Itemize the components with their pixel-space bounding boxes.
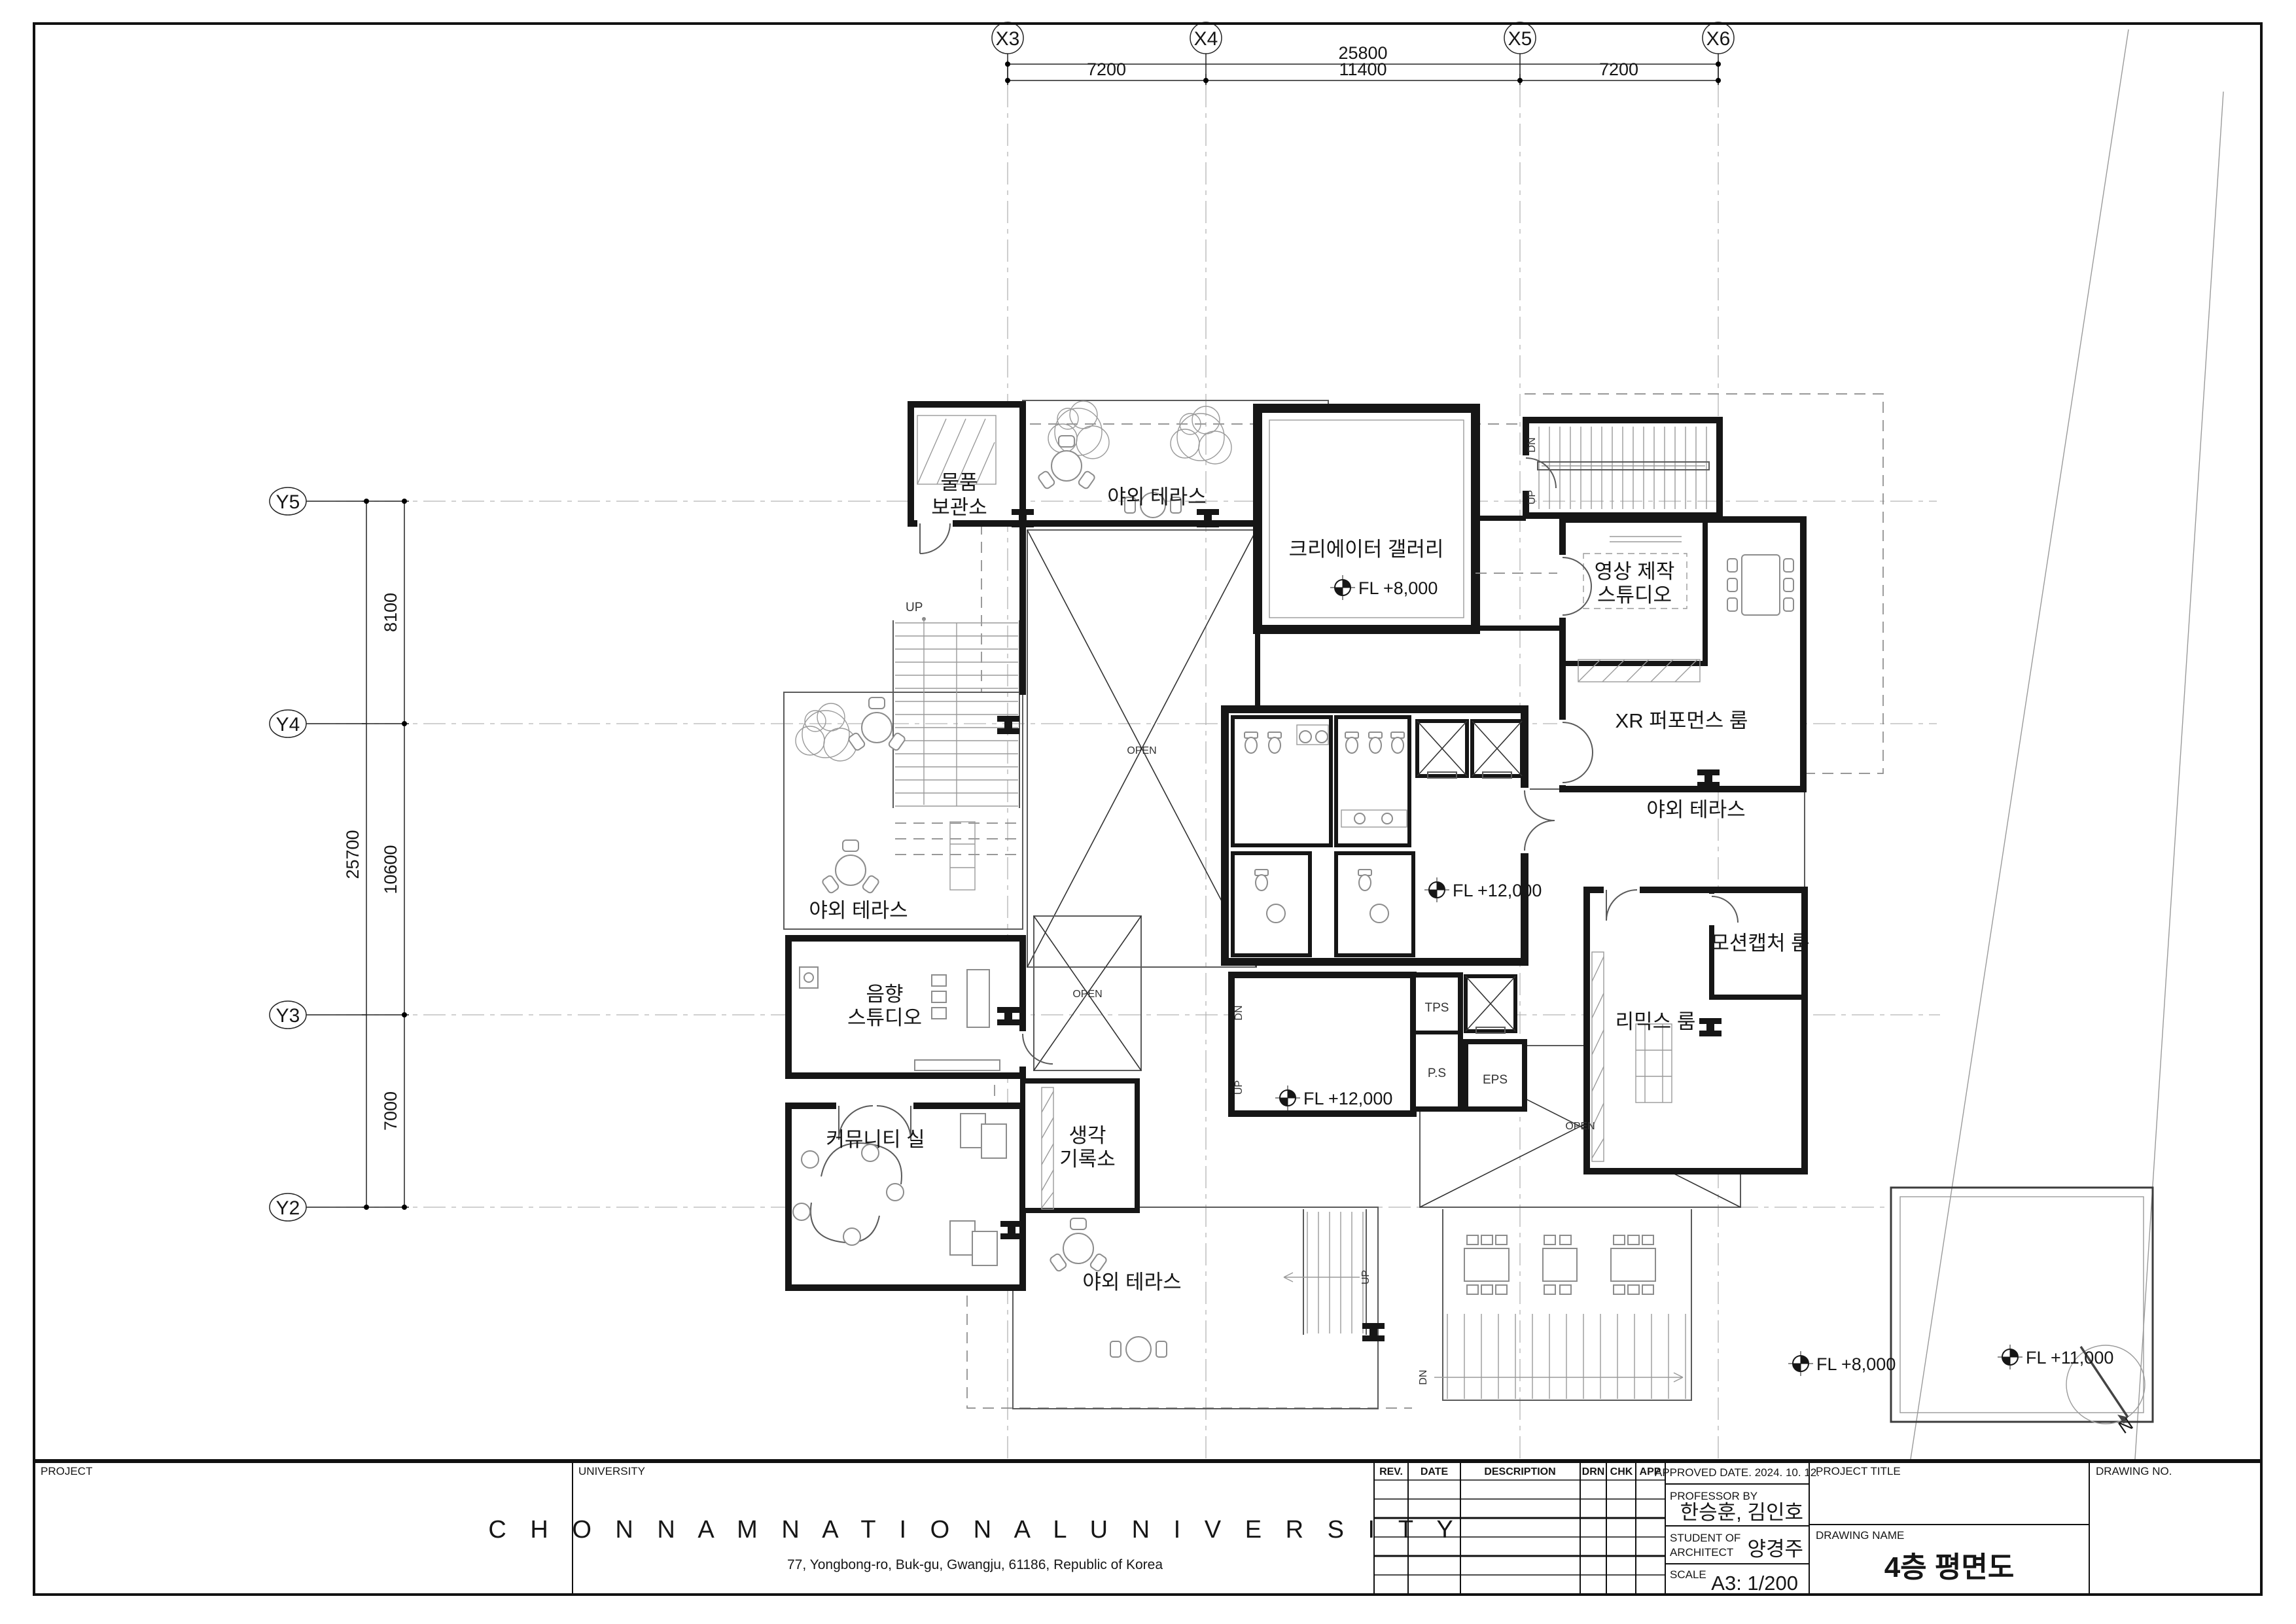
dim-y-seg-3: 7000 — [381, 1091, 400, 1131]
grid-bubble-x6: X6 — [1706, 28, 1731, 50]
dim-y-seg-2: 10600 — [381, 845, 400, 894]
room-label-terrace-left: 야외 테라스 — [809, 899, 908, 922]
up-label-tr-stair: UP — [1527, 490, 1538, 504]
room-label-video-2: 스튜디오 — [1597, 584, 1672, 607]
dn-label-deck: DN — [1418, 1369, 1429, 1385]
project-label: PROJECT — [41, 1465, 92, 1477]
room-label-remix: 리믹스 룸 — [1616, 1010, 1696, 1033]
professor-names: 한승훈, 김인호 — [1680, 1501, 1803, 1524]
room-label-storage-1: 물품 — [940, 471, 978, 494]
drawing-sheet: 25800 7200 11400 7200 25700 8100 10600 7… — [0, 0, 2296, 1624]
tps-label: TPS — [1425, 1001, 1449, 1015]
dim-y-total: 25700 — [343, 830, 362, 879]
up-label-left-stair: UP — [906, 601, 923, 614]
stair-bottom — [1303, 1209, 1366, 1335]
eps-label: EPS — [1483, 1073, 1508, 1087]
stair-left — [893, 620, 1019, 855]
room-label-terrace-top: 야외 테라스 — [1107, 485, 1206, 508]
room-label-xr: XR 퍼포먼스 룸 — [1616, 709, 1748, 732]
dim-x-seg-2: 11400 — [1339, 60, 1386, 79]
up-label-core-stair: UP — [1233, 1080, 1245, 1095]
up-label-bottom-stair: UP — [1360, 1270, 1371, 1284]
scale-value: A3: 1/200 — [1711, 1572, 1798, 1595]
room-label-terrace-bottom: 야외 테라스 — [1082, 1271, 1181, 1294]
grid-bubble-x3: X3 — [996, 28, 1020, 50]
grid-bubble-y5: Y5 — [276, 491, 300, 513]
drawing-name-label: DRAWING NAME — [1816, 1529, 1904, 1542]
open-label-center: OPEN — [1127, 745, 1156, 756]
scale-label: SCALE — [1670, 1568, 1706, 1581]
university-name: C H O N N A M N A T I O N A L U N I V E … — [488, 1516, 1461, 1544]
grid-bubble-x5: X5 — [1508, 28, 1532, 50]
room-label-memo-2: 기록소 — [1059, 1148, 1116, 1171]
dim-x-seg-3: 7200 — [1599, 60, 1638, 79]
room-label-sound-2: 스튜디오 — [847, 1006, 922, 1029]
grid-bubble-y2: Y2 — [276, 1197, 300, 1219]
student-name: 양경주 — [1747, 1538, 1803, 1561]
room-label-terrace-right: 야외 테라스 — [1646, 798, 1745, 821]
grid-bubble-y3: Y3 — [276, 1005, 300, 1027]
student-label-2: ARCHITECT — [1670, 1546, 1733, 1559]
room-label-memo-1: 생각 — [1069, 1124, 1106, 1147]
chk-header: CHK — [1610, 1466, 1633, 1477]
room-label-mocap: 모션캡처 룸 — [1710, 932, 1809, 955]
drn-header: DRN — [1582, 1466, 1605, 1477]
floor-plan-canvas: 25800 7200 11400 7200 25700 8100 10600 7… — [0, 0, 2296, 1624]
grid-bubble-y4: Y4 — [276, 714, 300, 735]
north-label: N — [2115, 1414, 2136, 1438]
level-core: FL +12,000 — [1453, 881, 1542, 900]
room-label-gallery: 크리에이터 갤러리 — [1289, 538, 1444, 561]
level-roof11: FL +11,000 — [2026, 1348, 2113, 1368]
room-label-storage-2: 보관소 — [931, 496, 987, 519]
project-title-label: PROJECT TITLE — [1816, 1465, 1901, 1477]
level-gallery: FL +8,000 — [1358, 578, 1438, 598]
approved-date: APPROVED DATE. 2024. 10. 12. — [1655, 1466, 1820, 1479]
drawing-no-label: DRAWING NO. — [2096, 1465, 2172, 1477]
room-label-sound-1: 음향 — [866, 983, 903, 1006]
dim-y-seg-1: 8100 — [381, 593, 400, 632]
room-label-community: 커뮤니티 실 — [826, 1128, 925, 1151]
dn-label-core-stair: DN — [1233, 1005, 1245, 1020]
stair-top-right — [1538, 427, 1709, 509]
dn-label-tr-stair: DN — [1527, 437, 1538, 452]
university-address: 77, Yongbong-ro, Buk-gu, Gwangju, 61186,… — [787, 1557, 1163, 1572]
drawing-name-value: 4층 평면도 — [1884, 1551, 2015, 1583]
title-block: PROJECT UNIVERSITY C H O N N A M N A T I… — [34, 24, 2261, 1595]
description-header: DESCRIPTION — [1484, 1466, 1555, 1477]
room-label-video-1: 영상 제작 — [1595, 560, 1675, 583]
ps-label: P.S — [1428, 1067, 1446, 1080]
student-label-1: STUDENT OF — [1670, 1532, 1740, 1544]
open-label-shaft: OPEN — [1072, 989, 1102, 1000]
level-hall: FL +12,000 — [1303, 1089, 1392, 1108]
rev-header: REV. — [1379, 1466, 1403, 1477]
open-label-southeast: OPEN — [1565, 1121, 1595, 1132]
university-label: UNIVERSITY — [578, 1465, 645, 1477]
site-boundary-lines — [1911, 29, 2223, 1459]
dim-x-seg-1: 7200 — [1087, 60, 1126, 79]
level-roof8: FL +8,000 — [1816, 1354, 1896, 1374]
grid-bubble-x4: X4 — [1194, 28, 1218, 50]
date-header: DATE — [1421, 1466, 1449, 1477]
